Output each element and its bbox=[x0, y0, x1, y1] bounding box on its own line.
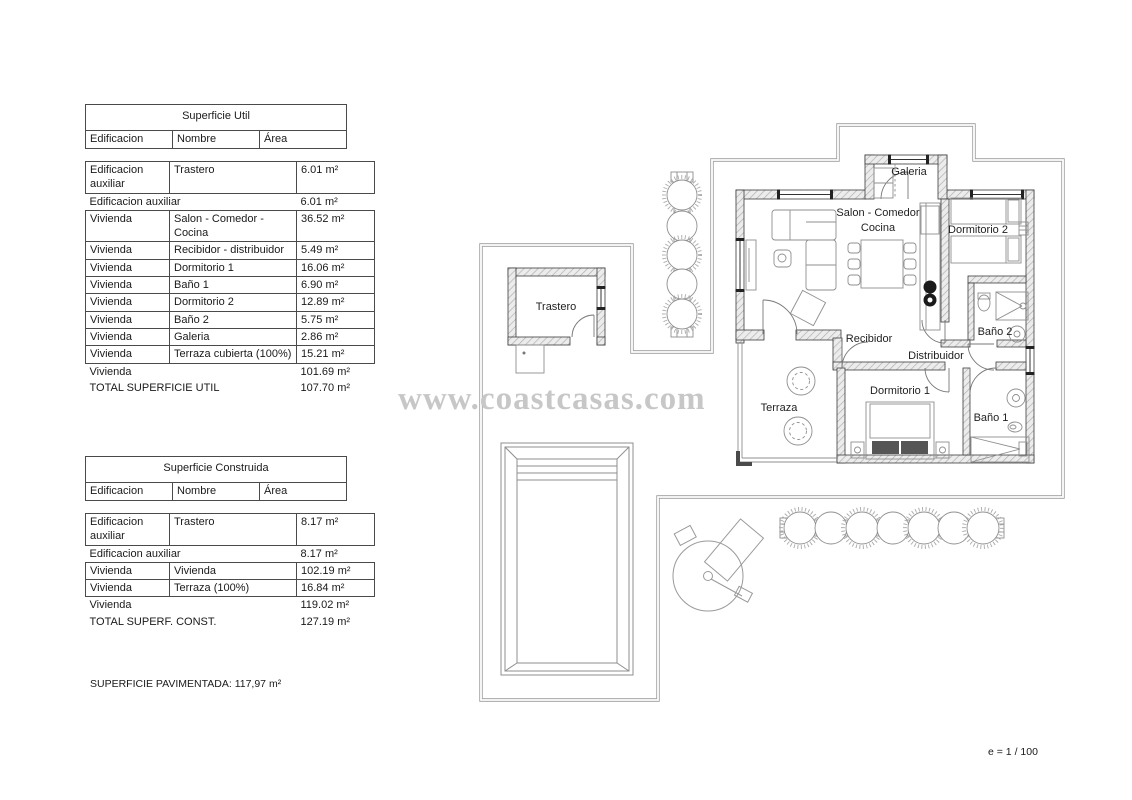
corner-mark bbox=[736, 451, 752, 466]
tree-icon bbox=[664, 177, 700, 213]
room-label-trastero: Trastero bbox=[536, 301, 577, 313]
tree-icon bbox=[905, 509, 943, 547]
room-label-distribuidor: Distribuidor bbox=[908, 350, 964, 362]
room-label-terraza: Terraza bbox=[761, 402, 799, 414]
tree-icon bbox=[781, 509, 819, 547]
door-arc bbox=[572, 315, 594, 337]
window-icon bbox=[1026, 346, 1035, 375]
window-icon bbox=[777, 190, 833, 200]
room-label-bano1: Baño 1 bbox=[974, 412, 1009, 424]
tree-icon bbox=[815, 512, 847, 544]
door-arc bbox=[968, 344, 994, 370]
toilet-icon bbox=[1008, 422, 1022, 432]
porch-icon bbox=[516, 345, 544, 373]
room-label-dormitorio2: Dormitorio 2 bbox=[948, 224, 1008, 236]
parasol-table-icon bbox=[673, 519, 763, 611]
tv-unit-icon bbox=[746, 240, 756, 290]
terrace-chair-icon bbox=[787, 367, 815, 395]
tree-icon bbox=[877, 512, 909, 544]
window-icon bbox=[736, 238, 745, 292]
door-arc bbox=[970, 368, 996, 394]
room-label-dormitorio1: Dormitorio 1 bbox=[870, 385, 930, 397]
dining-table-icon bbox=[848, 240, 916, 288]
toilet-icon bbox=[978, 293, 990, 311]
room-label-bano2: Baño 2 bbox=[978, 326, 1013, 338]
tree-icon bbox=[938, 512, 970, 544]
window-icon bbox=[597, 286, 606, 310]
door-arc bbox=[922, 320, 945, 343]
sink-icon bbox=[1007, 389, 1025, 407]
room-label-galeria: Galeria bbox=[891, 166, 927, 178]
terrace-chair-icon bbox=[784, 417, 812, 445]
room-label-recibidor: Recibidor bbox=[846, 333, 893, 345]
trastero-building bbox=[508, 268, 606, 373]
shower-icon bbox=[996, 292, 1028, 320]
pool-icon bbox=[501, 443, 633, 675]
room-label-salon-line1: Salon - Comedor bbox=[836, 207, 919, 219]
tree-icon bbox=[843, 509, 881, 547]
watermark: www.coastcasas.com bbox=[398, 381, 728, 418]
double-bed-icon bbox=[851, 402, 949, 459]
window-icon bbox=[888, 155, 929, 165]
tree-icon bbox=[664, 237, 700, 273]
tree-icon bbox=[964, 509, 1002, 547]
tree-icon bbox=[664, 296, 700, 332]
side-table-icon bbox=[774, 250, 791, 267]
room-label-salon-line2: Cocina bbox=[861, 222, 896, 234]
door-arc bbox=[763, 300, 797, 334]
tree-column bbox=[664, 172, 700, 337]
ottoman-icon bbox=[790, 290, 825, 325]
floor-plan-page: Superficie Util Edificacion Nombre Área … bbox=[0, 0, 1132, 800]
kitchen-counter-icon bbox=[920, 203, 940, 330]
hedge-row bbox=[780, 509, 1004, 547]
